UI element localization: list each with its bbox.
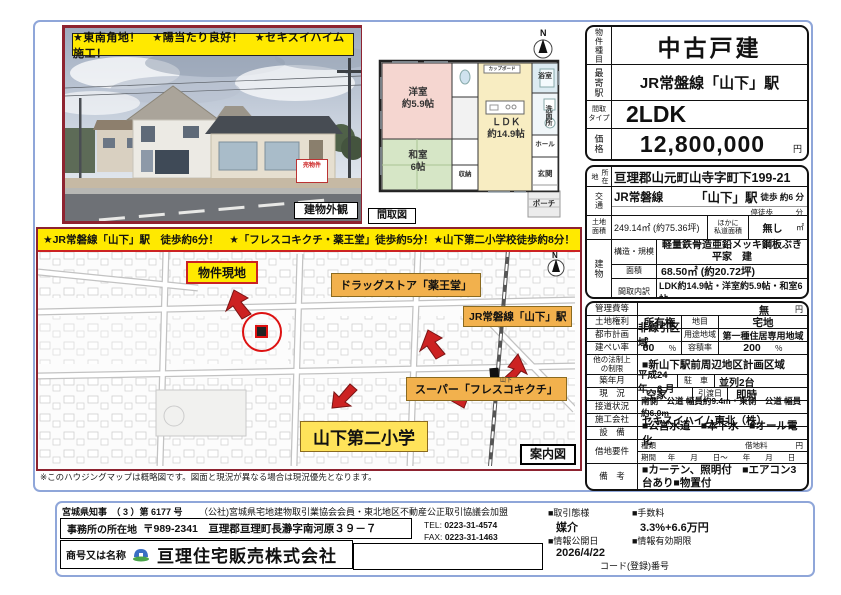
- land-rights-label: 土地権利: [587, 316, 638, 328]
- flyer-page: ★東南角地！ ★陽当たり良好！ ★セキスイハイム施工！ 売物件 建物外観: [0, 0, 841, 595]
- lease-period-value: 年 月 日～ 年 月 日: [668, 452, 796, 463]
- land-category-value: 宅地: [719, 316, 807, 328]
- transaction-mode-value: 媒介: [548, 519, 589, 535]
- city-plan-value: 非線引区域: [638, 329, 681, 341]
- price-row: 価格 12,800,000 円: [587, 128, 807, 159]
- company-name-label: 商号又は名称: [61, 547, 131, 562]
- sale-sign-text: 売物件: [303, 163, 321, 169]
- fax-label: FAX:: [424, 532, 442, 542]
- office-address-box: 事務所の所在地 〒989-2341 亘理郡亘理町長瀞字南河原３９－７: [60, 518, 412, 539]
- summary-box: 物件種目 中古戸建 最寄駅 JR常盤線「山下」駅 間取 タイプ 2LDK 価格 …: [585, 25, 809, 161]
- utilities-row: 設 備 ■公営水道 ■本下水 ■オール電化: [587, 426, 807, 439]
- layout-type-value: 2LDK: [612, 101, 807, 128]
- photo-banner: ★東南角地！ ★陽当たり良好！ ★セキスイハイム施工！: [72, 33, 354, 56]
- map-banner: ★JR常磐線「山下」駅 徒歩約6分！ ★「フレスコキクチ・薬王堂」徒歩約5分！★…: [38, 229, 580, 252]
- map-north-label: N: [552, 251, 558, 260]
- tel-value: 0223-31-4574: [444, 520, 497, 530]
- coverage-value: 60: [643, 342, 655, 354]
- land-other-label: ほかに 私道面積: [707, 216, 749, 239]
- room-porch-label: ポーチ: [527, 199, 561, 208]
- building-group-row: 建物 構造・規模 軽量鉄骨造亜鉛メッキ鋼板ぶき 平家 建 面積 68.50㎡ (…: [587, 239, 807, 297]
- coverage-unit: ％: [668, 343, 676, 354]
- map-school-label: 山下第二小学: [300, 421, 428, 452]
- bldg-area-label: 面積: [612, 265, 657, 278]
- property-type-row: 物件種目 中古戸建: [587, 27, 807, 64]
- map-station-name: 山下: [500, 375, 512, 384]
- leasehold-label: 借地要件: [587, 440, 638, 463]
- layout-type-row: 間取 タイプ 2LDK: [587, 100, 807, 128]
- info-valid-label: ■情報有効期限: [632, 534, 691, 547]
- company-logo-icon: [131, 546, 151, 564]
- land-area-label: 土地 面積: [587, 216, 612, 239]
- room-japanese-label: 和室 6帖: [390, 150, 446, 174]
- access-row: 交通 JR常磐線 「山下」駅 徒歩 約6 分 停徒歩 分: [587, 186, 807, 215]
- land-unit: ㎡: [796, 222, 807, 233]
- other-restrictions-row: 他の法制上 の制限 ■新山下駅前周辺地区計画区域: [587, 354, 807, 374]
- mgmt-fee-row: 管理費等 無 円: [587, 303, 807, 315]
- remarks-row: 備 考 ■カーテン、照明付 ■エアコン3台あり■物置付: [587, 463, 807, 489]
- commission-value: 3.3%+6.6万円: [632, 519, 709, 535]
- info-release-label: ■情報公開日: [548, 534, 605, 547]
- commission: ■手数料 3.3%+6.6万円: [632, 506, 709, 535]
- rooms-label: 間取内訳: [612, 279, 657, 299]
- far-unit: ％: [775, 343, 783, 354]
- structure-label: 構造・規模: [612, 240, 657, 264]
- price-label: 価格: [587, 129, 612, 159]
- built-year-row: 築年月 平成24 年 6 月 駐 車 並列2台: [587, 374, 807, 387]
- exterior-photo: ★東南角地！ ★陽当たり良好！ ★セキスイハイム施工！ 売物件 建物外観: [62, 25, 364, 224]
- floorplan-caption: 間取図: [368, 208, 416, 224]
- far-label: 容積率: [681, 342, 719, 354]
- access-station: 「山下」駅: [695, 187, 758, 206]
- footer-empty-box: [353, 543, 543, 570]
- lease-period-label: 期間: [638, 452, 656, 463]
- map-super-label: スーパー「フレスコキクチ」: [406, 377, 567, 401]
- coverage-row: 建ぺい率 60 ％ 容積率 200 ％: [587, 341, 807, 354]
- map-banner-text: ★JR常磐線「山下」駅 徒歩約6分！ ★「フレスコキクチ・薬王堂」徒歩約5分！★…: [43, 232, 575, 247]
- license-number: 宮城県知事 （ 3 ）第 6177 号: [62, 507, 183, 517]
- room-western-label: 洋室 約5.9帖: [390, 87, 446, 111]
- parking-value: 並列2台: [715, 375, 807, 387]
- room-washroom-label: 洗面所: [538, 99, 552, 131]
- room-hall-label: ホール: [530, 141, 560, 149]
- coverage-label: 建ぺい率: [587, 342, 638, 354]
- access-line: JR常磐線: [612, 189, 663, 205]
- layout-type-label: 間取 タイプ: [587, 101, 612, 128]
- nearest-station-label: 最寄駅: [587, 65, 612, 100]
- land-area-value: 249.14㎡ (約75.36坪): [612, 216, 707, 239]
- map-drugstore-label: ドラッグストア「薬王堂」: [331, 273, 481, 297]
- map-station-label: JR常磐線「山下」駅: [463, 306, 572, 327]
- guide-map: ★JR常磐線「山下」駅 徒歩約6分！ ★「フレスコキクチ・薬王堂」徒歩約5分！★…: [36, 227, 582, 471]
- location-box: 所在地 亘理郡山元町山寺字町下199-21 交通 JR常磐線 「山下」駅 徒歩 …: [585, 165, 809, 299]
- city-plan-row: 都市計画 非線引区域 用途地域 第一種住居専用地域: [587, 328, 807, 341]
- tel-fax: TEL: 0223-31-4574 FAX: 0223-31-1463: [424, 519, 498, 543]
- room-ldk-label: ＬＤＫ 約14.9帖: [476, 117, 536, 141]
- company-name-box: 商号又は名称 亘理住宅販売株式会社: [60, 540, 353, 569]
- other-restrictions-label: 他の法制上 の制限: [587, 355, 638, 374]
- room-entrance-label: 玄関: [532, 169, 558, 178]
- road-access-value: 南側 公道 幅員約9.4m・東側 公道 幅員約6.0m: [638, 401, 807, 413]
- fax-value: 0223-31-1463: [445, 532, 498, 542]
- room-bath-label: 浴室: [532, 73, 558, 82]
- remarks-value: ■カーテン、照明付 ■エアコン3台あり■物置付: [638, 464, 807, 489]
- address-value: 亘理郡山元町山寺字町下199-21: [612, 167, 807, 186]
- commission-label: ■手数料: [632, 506, 709, 519]
- price-unit: 円: [793, 129, 807, 159]
- plan-north-label: N: [540, 28, 547, 38]
- map-note: ※このハウジングマップは概略図です。図面と現況が異なる場合は現況優先となります。: [40, 471, 377, 483]
- building-label: 建物: [587, 240, 612, 297]
- info-valid-until: ■情報有効期限: [632, 534, 691, 547]
- access-label: 交通: [587, 187, 612, 215]
- details-box: 管理費等 無 円 土地権利 所有権 地目 宅地 都市計画 非線引区域 用途地域 …: [585, 301, 809, 491]
- info-release-date: ■情報公開日 2026/4/22: [548, 534, 605, 559]
- address-label: 所在地: [587, 167, 612, 186]
- lease-rent-unit: 円: [796, 440, 808, 451]
- info-release-value: 2026/4/22: [548, 547, 605, 559]
- structure-value: 軽量鉄骨造亜鉛メッキ鋼板ぶき 平家 建: [657, 240, 807, 264]
- tel-label: TEL:: [424, 520, 442, 530]
- office-address-value: 〒989-2341 亘理郡亘理町長瀞字南河原３９－７: [143, 521, 376, 536]
- rooms-value: LDK約14.9帖・洋室約5.9帖・和室6帖: [657, 279, 807, 299]
- parking-label: 駐 車: [677, 375, 715, 387]
- address-row: 所在地 亘理郡山元町山寺字町下199-21: [587, 167, 807, 186]
- map-corner-label: 案内図: [520, 444, 576, 465]
- built-year-label: 築年月: [587, 375, 638, 387]
- utilities-value: ■公営水道 ■本下水 ■オール電化: [638, 427, 807, 439]
- road-access-row: 接道状況 南側 公道 幅員約9.4m・東側 公道 幅員約6.0m: [587, 400, 807, 413]
- remarks-label: 備 考: [587, 464, 638, 489]
- transaction-mode: ■取引態様 媒介: [548, 506, 589, 535]
- floorplan: 洋室 約5.9帖 和室 6帖 ＬＤＫ 約14.9帖 浴室 洗面所 ホール 玄関 …: [362, 25, 575, 226]
- property-type-label: 物件種目: [587, 27, 612, 64]
- sale-sign: 売物件: [296, 159, 328, 183]
- built-year-value: 平成24 年 6 月: [638, 375, 677, 387]
- lease-rent-label: 借地料: [745, 440, 768, 451]
- zoning-value: 第一種住居専用地域: [719, 329, 807, 341]
- access-walk: 徒歩 約6 分: [758, 191, 807, 203]
- transaction-mode-label: ■取引態様: [548, 506, 589, 519]
- room-closet-label: 収納: [453, 171, 477, 179]
- nearest-station-value: JR常盤線「山下」駅: [612, 65, 807, 100]
- land-category-label: 地目: [681, 316, 719, 328]
- office-address-label: 事務所の所在地: [61, 521, 143, 536]
- photo-caption: 建物外観: [294, 202, 358, 219]
- mgmt-fee-label: 管理費等: [587, 303, 638, 315]
- code-number-label: コード(登録)番号: [600, 559, 669, 572]
- photo-banner-text: ★東南角地！ ★陽当たり良好！ ★セキスイハイム施工！: [73, 29, 353, 61]
- builder-label: 施工会社: [587, 414, 638, 426]
- utilities-label: 設 備: [587, 427, 638, 439]
- mgmt-fee-unit: 円: [795, 304, 807, 315]
- land-area-row: 土地 面積 249.14㎡ (約75.36坪) ほかに 私道面積 無し ㎡: [587, 215, 807, 239]
- license-membership: （公社)宮城県宅地建物取引業協会会員・東北地区不動産公正取引協議会加盟: [199, 507, 508, 517]
- cupboard-label: カップボード: [482, 66, 522, 72]
- property-type-value: 中古戸建: [612, 27, 807, 64]
- price-value: 12,800,000: [612, 129, 793, 159]
- company-name-value: 亘理住宅販売株式会社: [157, 542, 337, 567]
- land-other-value: 無し: [763, 220, 783, 235]
- nearest-station-row: 最寄駅 JR常盤線「山下」駅: [587, 64, 807, 100]
- current-status-label: 現 況: [587, 388, 638, 400]
- city-plan-label: 都市計画: [587, 329, 638, 341]
- far-value: 200: [743, 342, 761, 354]
- bldg-area-value: 68.50㎡ (約20.72坪): [657, 265, 807, 278]
- road-access-label: 接道状況: [587, 401, 638, 413]
- land-rights-row: 土地権利 所有権 地目 宅地: [587, 315, 807, 328]
- license-line: 宮城県知事 （ 3 ）第 6177 号 （公社)宮城県宅地建物取引業協会会員・東…: [62, 505, 508, 518]
- zoning-label: 用途地域: [681, 329, 719, 341]
- leasehold-row: 借地要件 種類 借地料 円 期間 年 月 日～ 年 月 日: [587, 439, 807, 463]
- lease-type-label: 種類: [638, 440, 656, 451]
- map-site-label: 物件現地: [186, 261, 258, 284]
